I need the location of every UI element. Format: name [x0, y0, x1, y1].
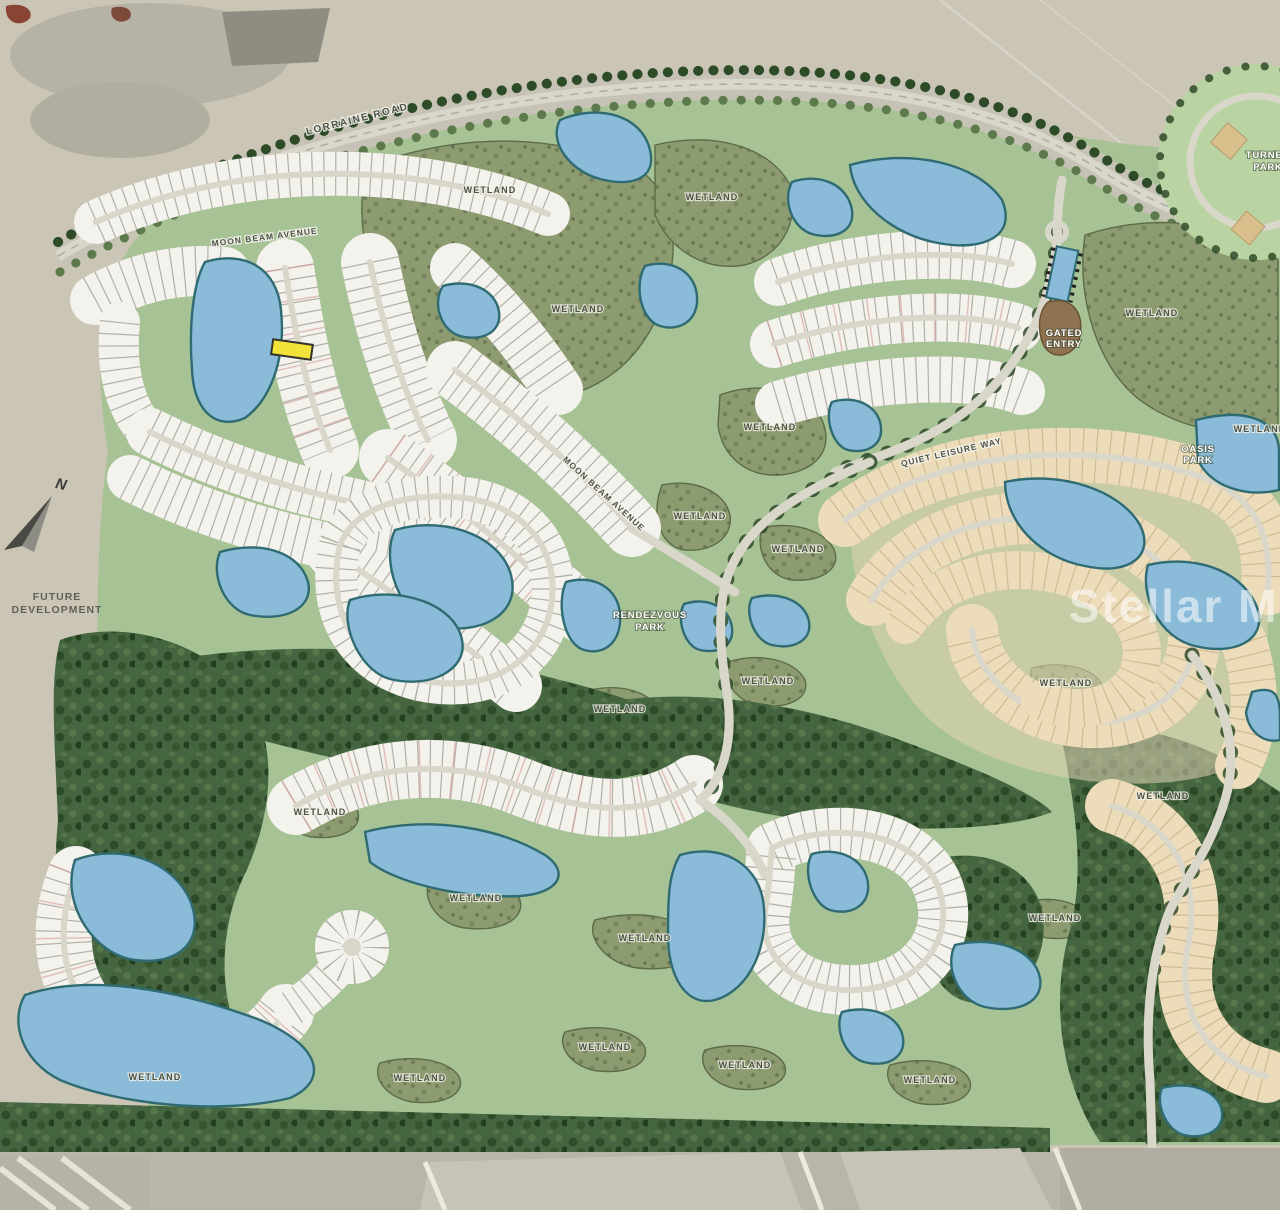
wetland-label: WETLAND	[394, 1073, 447, 1083]
wetland-label: WETLAND	[904, 1075, 957, 1085]
lot-band	[774, 317, 1018, 344]
wetland-label: WETLAND	[744, 422, 797, 432]
wetland-label: WETLAND	[594, 704, 647, 714]
wetland-label: WETLAND	[579, 1042, 632, 1052]
wetland-label: WETLAND	[686, 192, 739, 202]
wetland-label: WETLAND	[619, 933, 672, 943]
wetland-label: WETLAND	[772, 544, 825, 554]
wetland-label: WETLAND	[1126, 308, 1179, 318]
site-plan-screenshot: WETLANDWETLANDWETLANDWETLANDWETLANDWETLA…	[0, 0, 1280, 1210]
gated-entry-label: GATEDENTRY	[1046, 328, 1083, 350]
wetland-label: WETLAND	[464, 185, 517, 195]
stellar-mls-watermark: Stellar MLS	[1069, 580, 1280, 632]
oasis-park-label: OASISPARK	[1181, 444, 1215, 466]
wetland-label: WETLAND	[1234, 424, 1280, 434]
corner-roof-stripes	[0, 1158, 150, 1210]
wetland-label: WETLAND	[450, 893, 503, 903]
wetland-label: WETLAND	[129, 1072, 182, 1082]
site-plan-map: WETLANDWETLANDWETLANDWETLANDWETLANDWETLA…	[0, 0, 1280, 1210]
wetland-label: WETLAND	[294, 807, 347, 817]
wetland-label: WETLAND	[742, 676, 795, 686]
wetland-label: WETLAND	[552, 304, 605, 314]
wetland-label: WETLAND	[1040, 678, 1093, 688]
lot-band	[778, 255, 1012, 282]
wetland-label: WETLAND	[1137, 791, 1190, 801]
bottom-paved-area	[0, 1146, 1280, 1210]
wetland-label: WETLAND	[674, 511, 727, 521]
wetland-label: WETLAND	[719, 1060, 772, 1070]
wetland-label: WETLAND	[1029, 913, 1082, 923]
